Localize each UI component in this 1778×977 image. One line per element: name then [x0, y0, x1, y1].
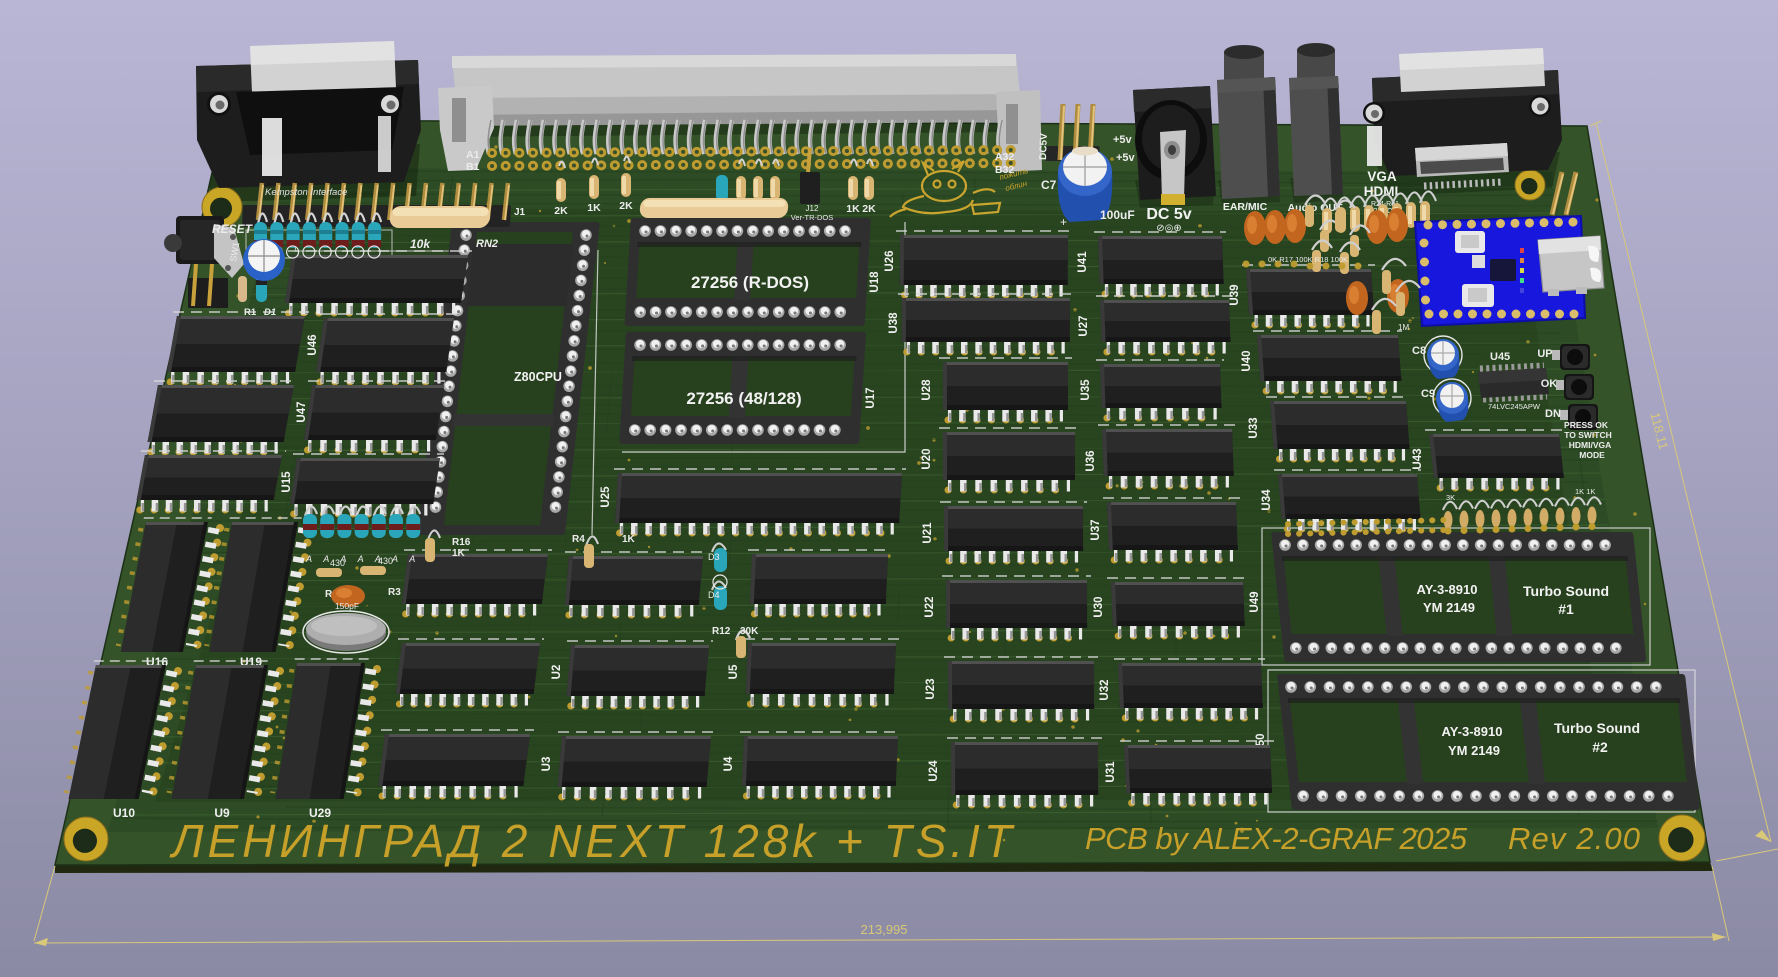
svg-text:1K: 1K [846, 203, 860, 215]
svg-text:U31: U31 [1105, 761, 1117, 783]
svg-text:U34: U34 [1261, 489, 1273, 511]
svg-text:DC 5v: DC 5v [1146, 206, 1191, 223]
svg-text:U45: U45 [1490, 351, 1510, 363]
svg-text:3K: 3K [1446, 493, 1455, 502]
svg-text:RN2: RN2 [476, 238, 498, 250]
svg-text:U30: U30 [1093, 596, 1105, 617]
svg-text:213,995: 213,995 [861, 922, 908, 937]
svg-text:U10: U10 [113, 806, 135, 820]
svg-text:B1: B1 [466, 161, 480, 173]
svg-text:U36: U36 [1085, 450, 1097, 471]
svg-text:R16: R16 [452, 537, 471, 548]
svg-text:U2: U2 [551, 665, 563, 680]
svg-text:Kempston Interface: Kempston Interface [265, 187, 347, 198]
svg-text:A32: A32 [995, 151, 1014, 163]
svg-text:Turbo Sound: Turbo Sound [1523, 583, 1609, 599]
svg-text:1M: 1M [1398, 323, 1409, 332]
svg-text:AY-3-8910: AY-3-8910 [1417, 582, 1478, 597]
svg-text:U25: U25 [600, 486, 612, 508]
svg-text:PCB by ALEX-2-GRAF 2025: PCB by ALEX-2-GRAF 2025 [1085, 821, 1468, 856]
svg-text:R4: R4 [572, 534, 585, 545]
svg-text:YM 2149: YM 2149 [1448, 743, 1500, 758]
svg-text:U32: U32 [1099, 679, 1111, 700]
svg-text:U20: U20 [921, 448, 933, 469]
svg-text:+5v: +5v [1113, 134, 1133, 146]
svg-text:U5: U5 [728, 664, 740, 679]
svg-text:U43: U43 [1412, 448, 1424, 469]
svg-text:C7: C7 [1041, 178, 1057, 192]
svg-text:J1: J1 [514, 207, 526, 218]
svg-text:PRESS OK: PRESS OK [1564, 420, 1609, 430]
svg-text:U38: U38 [888, 312, 900, 334]
svg-text:2K: 2K [619, 200, 633, 212]
svg-text:U3: U3 [541, 757, 553, 772]
svg-text:DC5V: DC5V [1038, 133, 1050, 160]
svg-text:U49: U49 [1249, 591, 1261, 612]
svg-text:U4: U4 [723, 756, 735, 771]
svg-text:+5v: +5v [1116, 152, 1136, 164]
svg-text:74LVC245APW: 74LVC245APW [1488, 402, 1541, 411]
svg-text:30K: 30K [740, 626, 759, 637]
svg-text:⊘◎⊕: ⊘◎⊕ [1156, 223, 1181, 234]
svg-text:A: A [408, 554, 415, 564]
svg-text:J12: J12 [806, 204, 819, 213]
svg-text:U40: U40 [1241, 350, 1253, 371]
svg-text:Turbo Sound: Turbo Sound [1554, 720, 1640, 736]
svg-text:U28: U28 [921, 379, 933, 401]
svg-text:U22: U22 [924, 596, 936, 617]
svg-text:Ver-TR-DOS: Ver-TR-DOS [791, 213, 834, 222]
svg-text:D3: D3 [708, 552, 720, 562]
svg-text:U37: U37 [1090, 519, 1102, 540]
svg-text:U26: U26 [884, 250, 896, 271]
svg-text:U15: U15 [281, 471, 293, 493]
svg-text:TO SWITCH: TO SWITCH [1564, 430, 1612, 440]
svg-text:U27: U27 [1078, 315, 1090, 336]
svg-text:UP: UP [1537, 348, 1552, 360]
svg-text:MODE: MODE [1579, 450, 1605, 460]
svg-text:1K: 1K [622, 534, 636, 545]
svg-text:AY-3-8910: AY-3-8910 [1442, 724, 1503, 739]
svg-text:2K: 2K [554, 205, 568, 217]
svg-text:U39: U39 [1229, 284, 1241, 305]
svg-text:R3: R3 [388, 587, 401, 598]
svg-text:+: + [1060, 215, 1067, 229]
svg-text:U24: U24 [928, 760, 940, 782]
svg-text:A: A [305, 554, 312, 564]
svg-text:R12: R12 [712, 626, 731, 637]
svg-text:D4: D4 [708, 590, 720, 600]
svg-text:U17: U17 [865, 387, 877, 408]
svg-text:1K 1K: 1K 1K [1575, 487, 1595, 496]
svg-text:EAR/MIC: EAR/MIC [1223, 201, 1268, 213]
svg-text:430: 430 [378, 556, 393, 566]
svg-text:YM 2149: YM 2149 [1423, 600, 1475, 615]
svg-text:27256 (R-DOS): 27256 (R-DOS) [691, 273, 809, 292]
svg-text:C8: C8 [1412, 345, 1426, 357]
svg-text:C9: C9 [1421, 388, 1435, 400]
svg-text:ЛЕНИНГРАД 2 NEXT 128k + TS.IT: ЛЕНИНГРАД 2 NEXT 128k + TS.IT [169, 815, 1015, 867]
svg-text:U47: U47 [296, 401, 308, 422]
svg-text:U41: U41 [1077, 251, 1089, 273]
svg-text:R1: R1 [244, 307, 257, 318]
svg-text:U35: U35 [1080, 379, 1092, 401]
svg-text:1K: 1K [452, 548, 466, 559]
svg-text:VGA: VGA [1367, 169, 1397, 184]
svg-text:U18: U18 [869, 271, 881, 293]
svg-text:U33: U33 [1248, 417, 1260, 438]
svg-text:27256 (48/128): 27256 (48/128) [686, 389, 801, 408]
svg-text:A1: A1 [466, 149, 480, 161]
svg-text:2K: 2K [862, 203, 876, 215]
svg-text:D1: D1 [264, 307, 276, 318]
svg-text:#1: #1 [1558, 601, 1574, 617]
svg-text:10k: 10k [410, 237, 431, 251]
svg-text:DN: DN [1545, 408, 1561, 420]
svg-text:U23: U23 [925, 678, 937, 699]
svg-text:150pF: 150pF [335, 601, 359, 611]
svg-text:RESET: RESET [212, 222, 254, 236]
svg-text:Rev 2.00: Rev 2.00 [1508, 821, 1640, 856]
svg-text:430: 430 [330, 558, 345, 568]
svg-text:0K R17 100K R18 100K: 0K R17 100K R18 100K [1268, 255, 1348, 264]
svg-text:1K: 1K [587, 202, 601, 214]
svg-text:#2: #2 [1592, 739, 1608, 755]
svg-text:Z80CPU: Z80CPU [514, 370, 562, 384]
svg-text:A: A [322, 554, 329, 564]
svg-text:U46: U46 [307, 334, 319, 355]
svg-text:U21: U21 [922, 522, 934, 544]
svg-text:HDMI/VGA: HDMI/VGA [1569, 440, 1612, 450]
svg-text:OK: OK [1541, 378, 1558, 390]
svg-text:100uF: 100uF [1100, 208, 1135, 222]
svg-text:A: A [357, 554, 364, 564]
